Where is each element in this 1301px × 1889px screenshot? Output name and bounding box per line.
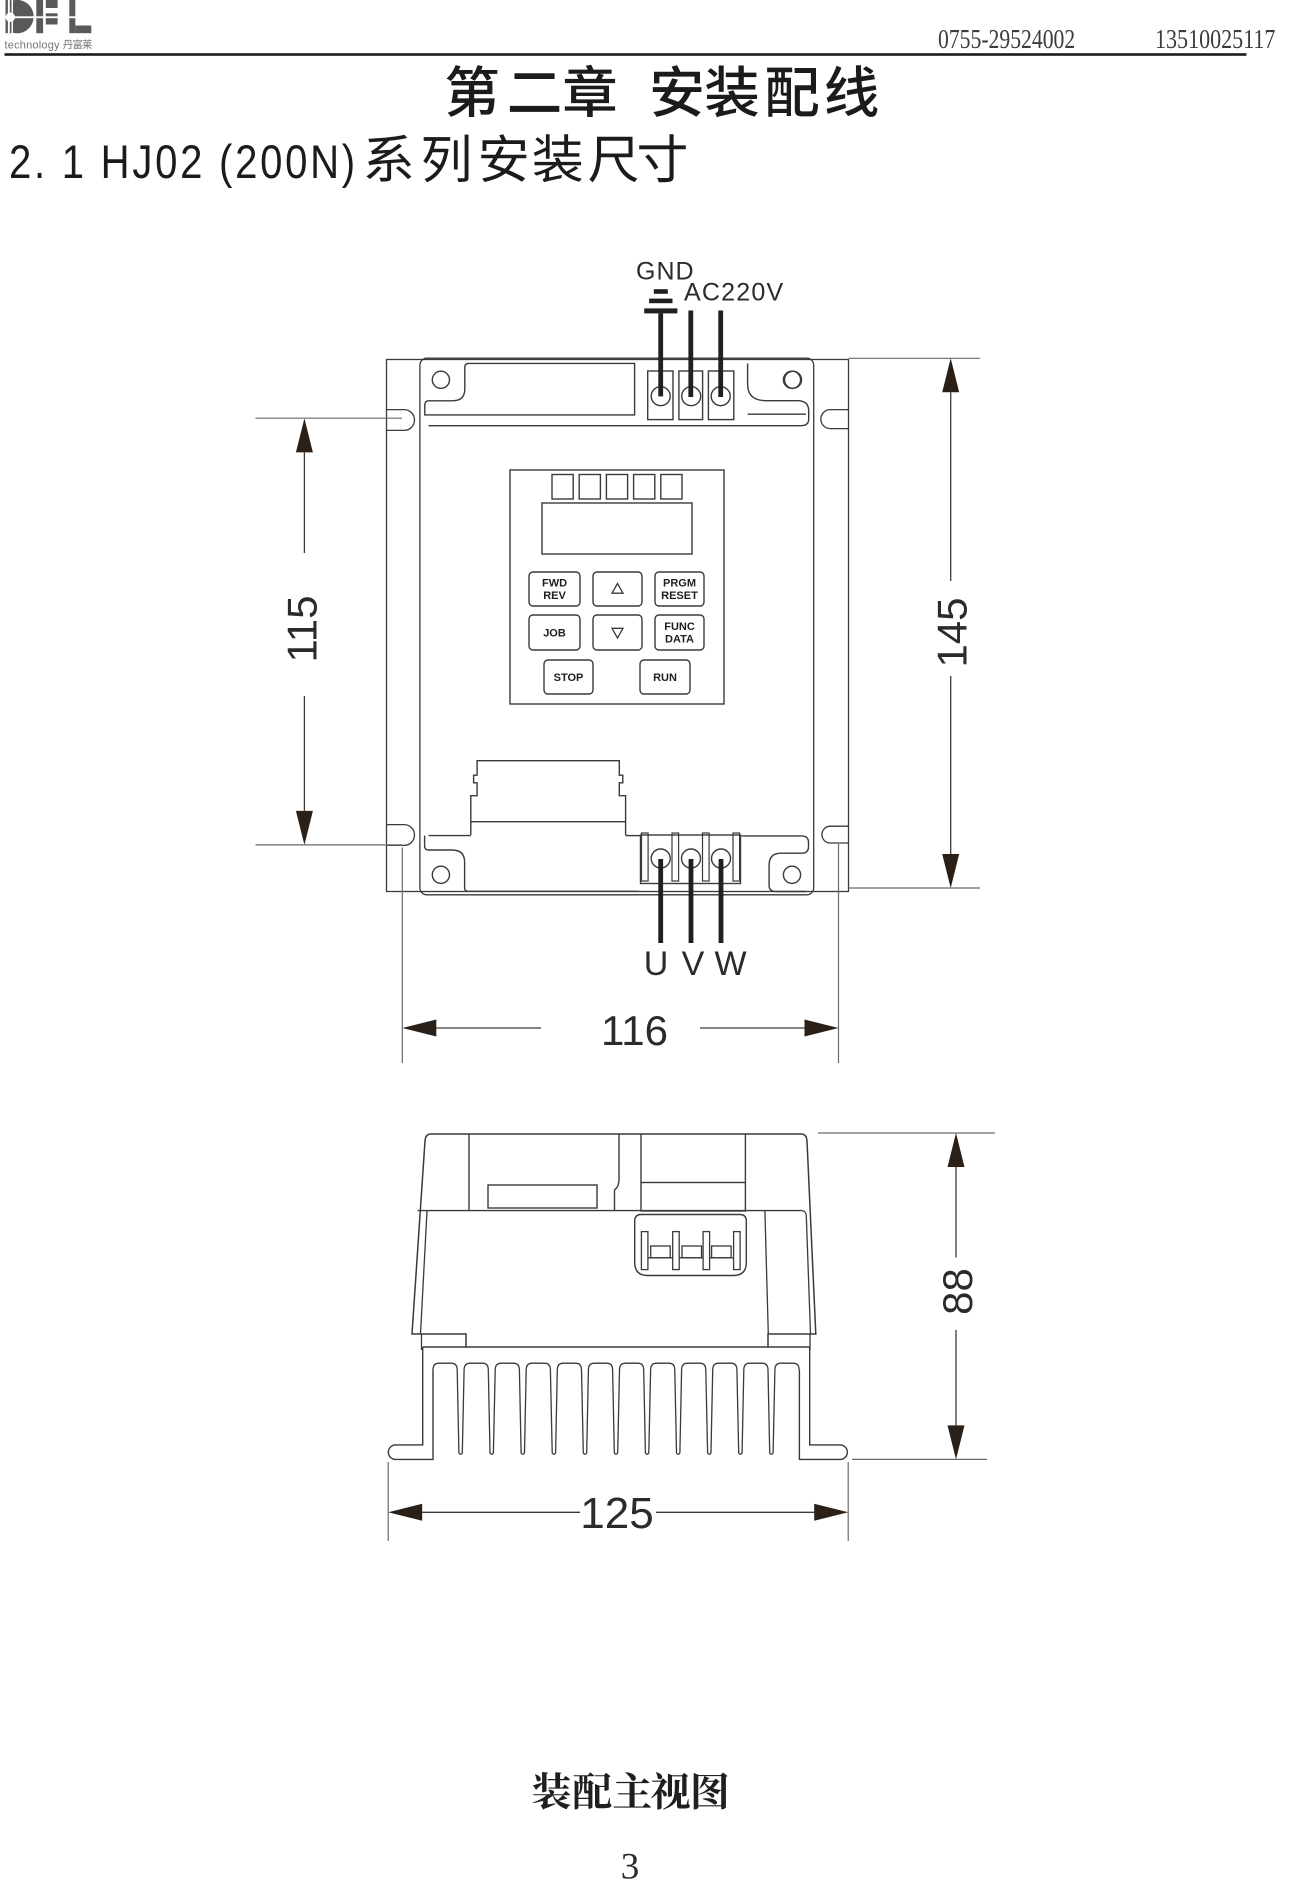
svg-text:RESET: RESET: [661, 590, 698, 602]
svg-text:125: 125: [580, 1489, 653, 1538]
svg-text:DATA: DATA: [665, 634, 694, 646]
svg-text:technology: technology: [5, 40, 61, 52]
svg-text:V: V: [682, 945, 705, 983]
svg-text:FWD: FWD: [542, 578, 567, 590]
svg-text:0755-29524002: 0755-29524002: [938, 25, 1075, 55]
svg-text:W: W: [714, 945, 746, 983]
svg-text:115: 115: [279, 596, 326, 663]
svg-text:STOP: STOP: [554, 672, 584, 684]
svg-text:JOB: JOB: [543, 628, 566, 640]
svg-text:145: 145: [929, 597, 976, 667]
svg-text:3: 3: [621, 1847, 640, 1888]
svg-text:PRGM: PRGM: [663, 578, 696, 590]
svg-text:2. 1 HJ02 (200N): 2. 1 HJ02 (200N): [9, 136, 358, 189]
svg-text:AC220V: AC220V: [684, 279, 784, 307]
svg-text:REV: REV: [543, 590, 566, 602]
svg-text:U: U: [644, 945, 669, 983]
svg-text:FUNC: FUNC: [664, 621, 695, 633]
svg-text:116: 116: [601, 1007, 668, 1054]
svg-text:88: 88: [934, 1268, 981, 1315]
svg-text:13510025117: 13510025117: [1155, 25, 1275, 55]
svg-text:RUN: RUN: [653, 672, 677, 684]
